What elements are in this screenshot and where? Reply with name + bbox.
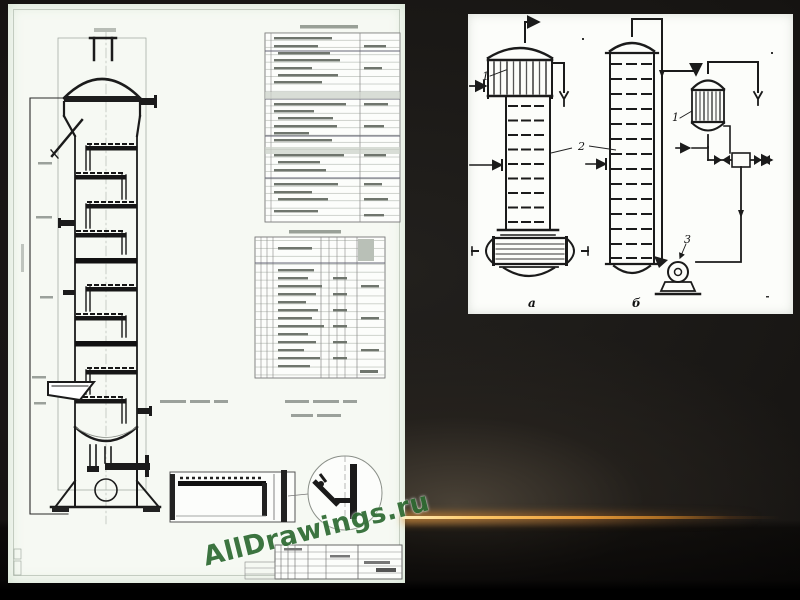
reboiler xyxy=(472,236,588,266)
view-annotations xyxy=(160,400,357,417)
label-variant-a: а xyxy=(528,296,536,310)
evaporator-schemes: 1 2 1 3 а б xyxy=(468,14,793,314)
glow-halo xyxy=(402,512,800,524)
tray-detail-drum xyxy=(170,470,308,522)
parts-list-table xyxy=(255,230,385,378)
column-front-view xyxy=(21,28,160,524)
parameters-table xyxy=(265,25,400,222)
valve-assembly xyxy=(696,147,771,262)
tray-lines xyxy=(509,106,547,222)
dome-head xyxy=(488,48,552,58)
return-pipe xyxy=(696,167,741,262)
meter-box xyxy=(732,153,750,167)
table-title-smudge xyxy=(300,25,358,29)
side-nozzle xyxy=(60,220,75,226)
glow-core xyxy=(402,516,800,519)
valve-icon xyxy=(714,155,722,165)
dome-head xyxy=(610,43,654,51)
process-flow-diagram: 1 2 1 3 а б xyxy=(468,14,793,314)
frame-mark xyxy=(14,561,21,575)
tray-lines xyxy=(612,64,652,258)
drain-funnel xyxy=(754,92,762,105)
external-heat-exchanger xyxy=(676,62,762,153)
top-side-nozzle xyxy=(140,98,154,105)
accent-glow-line xyxy=(402,509,800,527)
bottom-outlet-pipe xyxy=(105,463,150,470)
column-b xyxy=(586,19,696,273)
side-nozzle xyxy=(63,290,75,295)
label-exchanger-a: 1 xyxy=(482,70,489,83)
assembly-drawing xyxy=(8,4,405,583)
engineering-drawing-sheet xyxy=(8,4,405,583)
label-variant-b: б xyxy=(632,296,641,310)
bottom-head xyxy=(504,268,554,276)
bottom-head xyxy=(614,266,650,273)
vent-pipe xyxy=(708,62,758,92)
label-exchanger-b: 1 xyxy=(672,111,679,124)
external-pipe xyxy=(30,98,68,514)
circulation-pipe xyxy=(632,19,662,262)
condensate-outlet xyxy=(552,63,564,92)
frame-mark xyxy=(14,549,21,559)
feed-pipe xyxy=(52,120,82,156)
vapor-to-exchanger xyxy=(662,71,696,74)
dimension-smudge xyxy=(94,28,116,32)
presentation-slide: 1 2 1 3 а б AllDrawings.ru xyxy=(0,0,800,600)
valve-icon xyxy=(754,155,762,165)
callout-smudges xyxy=(21,162,53,405)
column-a xyxy=(470,22,588,276)
side-nozzle xyxy=(137,408,149,414)
built-in-heater xyxy=(488,58,552,98)
drain-funnel xyxy=(560,92,568,106)
label-pump: 3 xyxy=(684,233,691,246)
label-column: 2 xyxy=(577,140,585,153)
vapor-outlet-pipe xyxy=(525,22,538,42)
support-ring xyxy=(75,258,137,264)
table-title-smudge xyxy=(289,230,341,234)
circulation-pump xyxy=(654,244,700,294)
support-ring xyxy=(75,341,137,347)
top-head xyxy=(64,79,140,98)
